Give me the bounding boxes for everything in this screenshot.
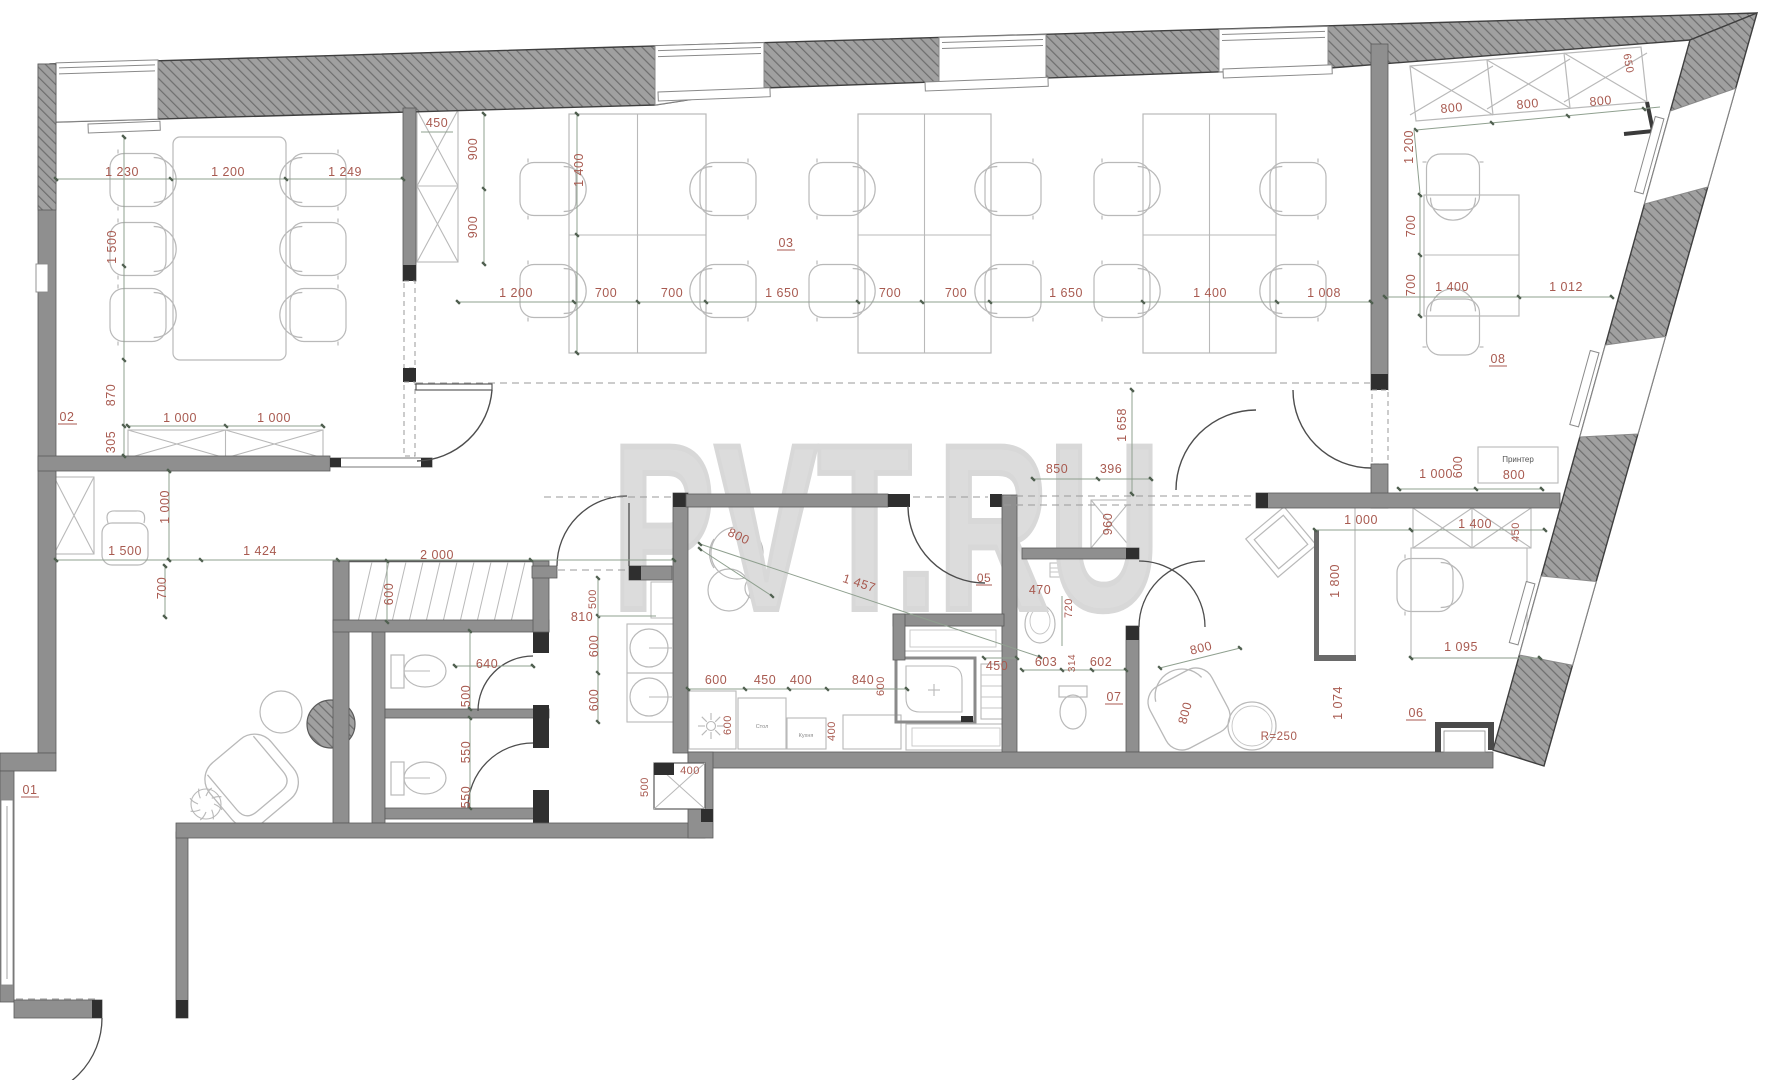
svg-text:1 200: 1 200 <box>1402 130 1416 164</box>
svg-text:600: 600 <box>722 715 734 735</box>
svg-text:1 249: 1 249 <box>328 165 362 179</box>
svg-text:500: 500 <box>459 685 473 707</box>
svg-text:1 400: 1 400 <box>572 153 586 187</box>
svg-text:1 000: 1 000 <box>1344 513 1378 527</box>
svg-text:600: 600 <box>587 689 601 711</box>
svg-text:1 400: 1 400 <box>1458 517 1492 531</box>
svg-text:01: 01 <box>23 783 38 797</box>
svg-text:700: 700 <box>879 286 901 300</box>
svg-text:700: 700 <box>945 286 967 300</box>
svg-text:314: 314 <box>1067 654 1078 672</box>
svg-text:1 424: 1 424 <box>243 544 277 558</box>
svg-text:1 500: 1 500 <box>108 544 142 558</box>
svg-text:1 000: 1 000 <box>163 411 197 425</box>
svg-text:1 095: 1 095 <box>1444 640 1478 654</box>
svg-text:960: 960 <box>1101 513 1115 535</box>
svg-text:1 200: 1 200 <box>499 286 533 300</box>
svg-text:1 000: 1 000 <box>158 490 172 524</box>
svg-text:1 012: 1 012 <box>1549 280 1583 294</box>
svg-text:1 400: 1 400 <box>1193 286 1227 300</box>
svg-text:Принтер: Принтер <box>1502 455 1534 464</box>
svg-text:600: 600 <box>382 583 396 605</box>
svg-text:470: 470 <box>1029 583 1051 597</box>
svg-text:07: 07 <box>1107 690 1122 704</box>
svg-text:550: 550 <box>459 786 473 808</box>
svg-text:1 000: 1 000 <box>1419 467 1453 481</box>
svg-text:700: 700 <box>1404 274 1418 296</box>
svg-text:450: 450 <box>754 673 776 687</box>
svg-text:1 008: 1 008 <box>1307 286 1341 300</box>
svg-text:1 200: 1 200 <box>211 165 245 179</box>
svg-text:600: 600 <box>705 673 727 687</box>
svg-text:700: 700 <box>595 286 617 300</box>
svg-text:870: 870 <box>104 384 118 406</box>
svg-text:640: 640 <box>476 657 498 671</box>
svg-text:1 658: 1 658 <box>1115 408 1129 442</box>
svg-text:700: 700 <box>661 286 683 300</box>
svg-text:600: 600 <box>1451 456 1465 478</box>
svg-text:500: 500 <box>587 589 599 609</box>
svg-text:800: 800 <box>1440 100 1463 116</box>
svg-text:1 000: 1 000 <box>257 411 291 425</box>
svg-text:800: 800 <box>1589 93 1612 109</box>
svg-text:400: 400 <box>790 673 812 687</box>
svg-text:1 650: 1 650 <box>1049 286 1083 300</box>
svg-text:08: 08 <box>1491 352 1506 366</box>
svg-text:06: 06 <box>1409 706 1424 720</box>
svg-text:700: 700 <box>155 577 169 599</box>
svg-text:602: 602 <box>1090 655 1112 669</box>
svg-text:400: 400 <box>680 765 700 777</box>
svg-text:03: 03 <box>779 236 794 250</box>
svg-text:600: 600 <box>875 676 887 696</box>
svg-text:05: 05 <box>977 571 991 585</box>
svg-text:850: 850 <box>1046 462 1068 476</box>
svg-text:2 000: 2 000 <box>420 548 454 562</box>
svg-text:305: 305 <box>104 431 118 453</box>
svg-text:700: 700 <box>1404 215 1418 237</box>
svg-text:Кухня: Кухня <box>799 733 814 739</box>
svg-text:840: 840 <box>852 673 874 687</box>
svg-text:800: 800 <box>1503 468 1525 482</box>
svg-text:400: 400 <box>826 721 838 741</box>
svg-text:02: 02 <box>60 410 75 424</box>
svg-text:1 800: 1 800 <box>1328 564 1342 598</box>
svg-text:800: 800 <box>1516 96 1539 112</box>
svg-text:810: 810 <box>571 610 593 624</box>
svg-text:500: 500 <box>639 777 651 797</box>
svg-text:Стол: Стол <box>756 724 769 730</box>
svg-text:550: 550 <box>459 741 473 763</box>
svg-text:1 500: 1 500 <box>105 230 119 264</box>
svg-text:1 650: 1 650 <box>765 286 799 300</box>
svg-text:603: 603 <box>1035 655 1057 669</box>
svg-text:450: 450 <box>1510 522 1522 542</box>
svg-text:1 400: 1 400 <box>1435 280 1469 294</box>
svg-text:1 074: 1 074 <box>1331 686 1345 720</box>
svg-text:450: 450 <box>986 659 1008 673</box>
svg-text:900: 900 <box>466 138 480 160</box>
svg-text:R=250: R=250 <box>1261 731 1298 743</box>
svg-text:900: 900 <box>466 216 480 238</box>
svg-text:396: 396 <box>1100 462 1122 476</box>
svg-text:450: 450 <box>426 116 448 130</box>
svg-text:PVT.RU: PVT.RU <box>612 396 1160 660</box>
svg-text:720: 720 <box>1063 598 1075 618</box>
svg-text:600: 600 <box>587 635 601 657</box>
svg-text:1 230: 1 230 <box>105 165 139 179</box>
